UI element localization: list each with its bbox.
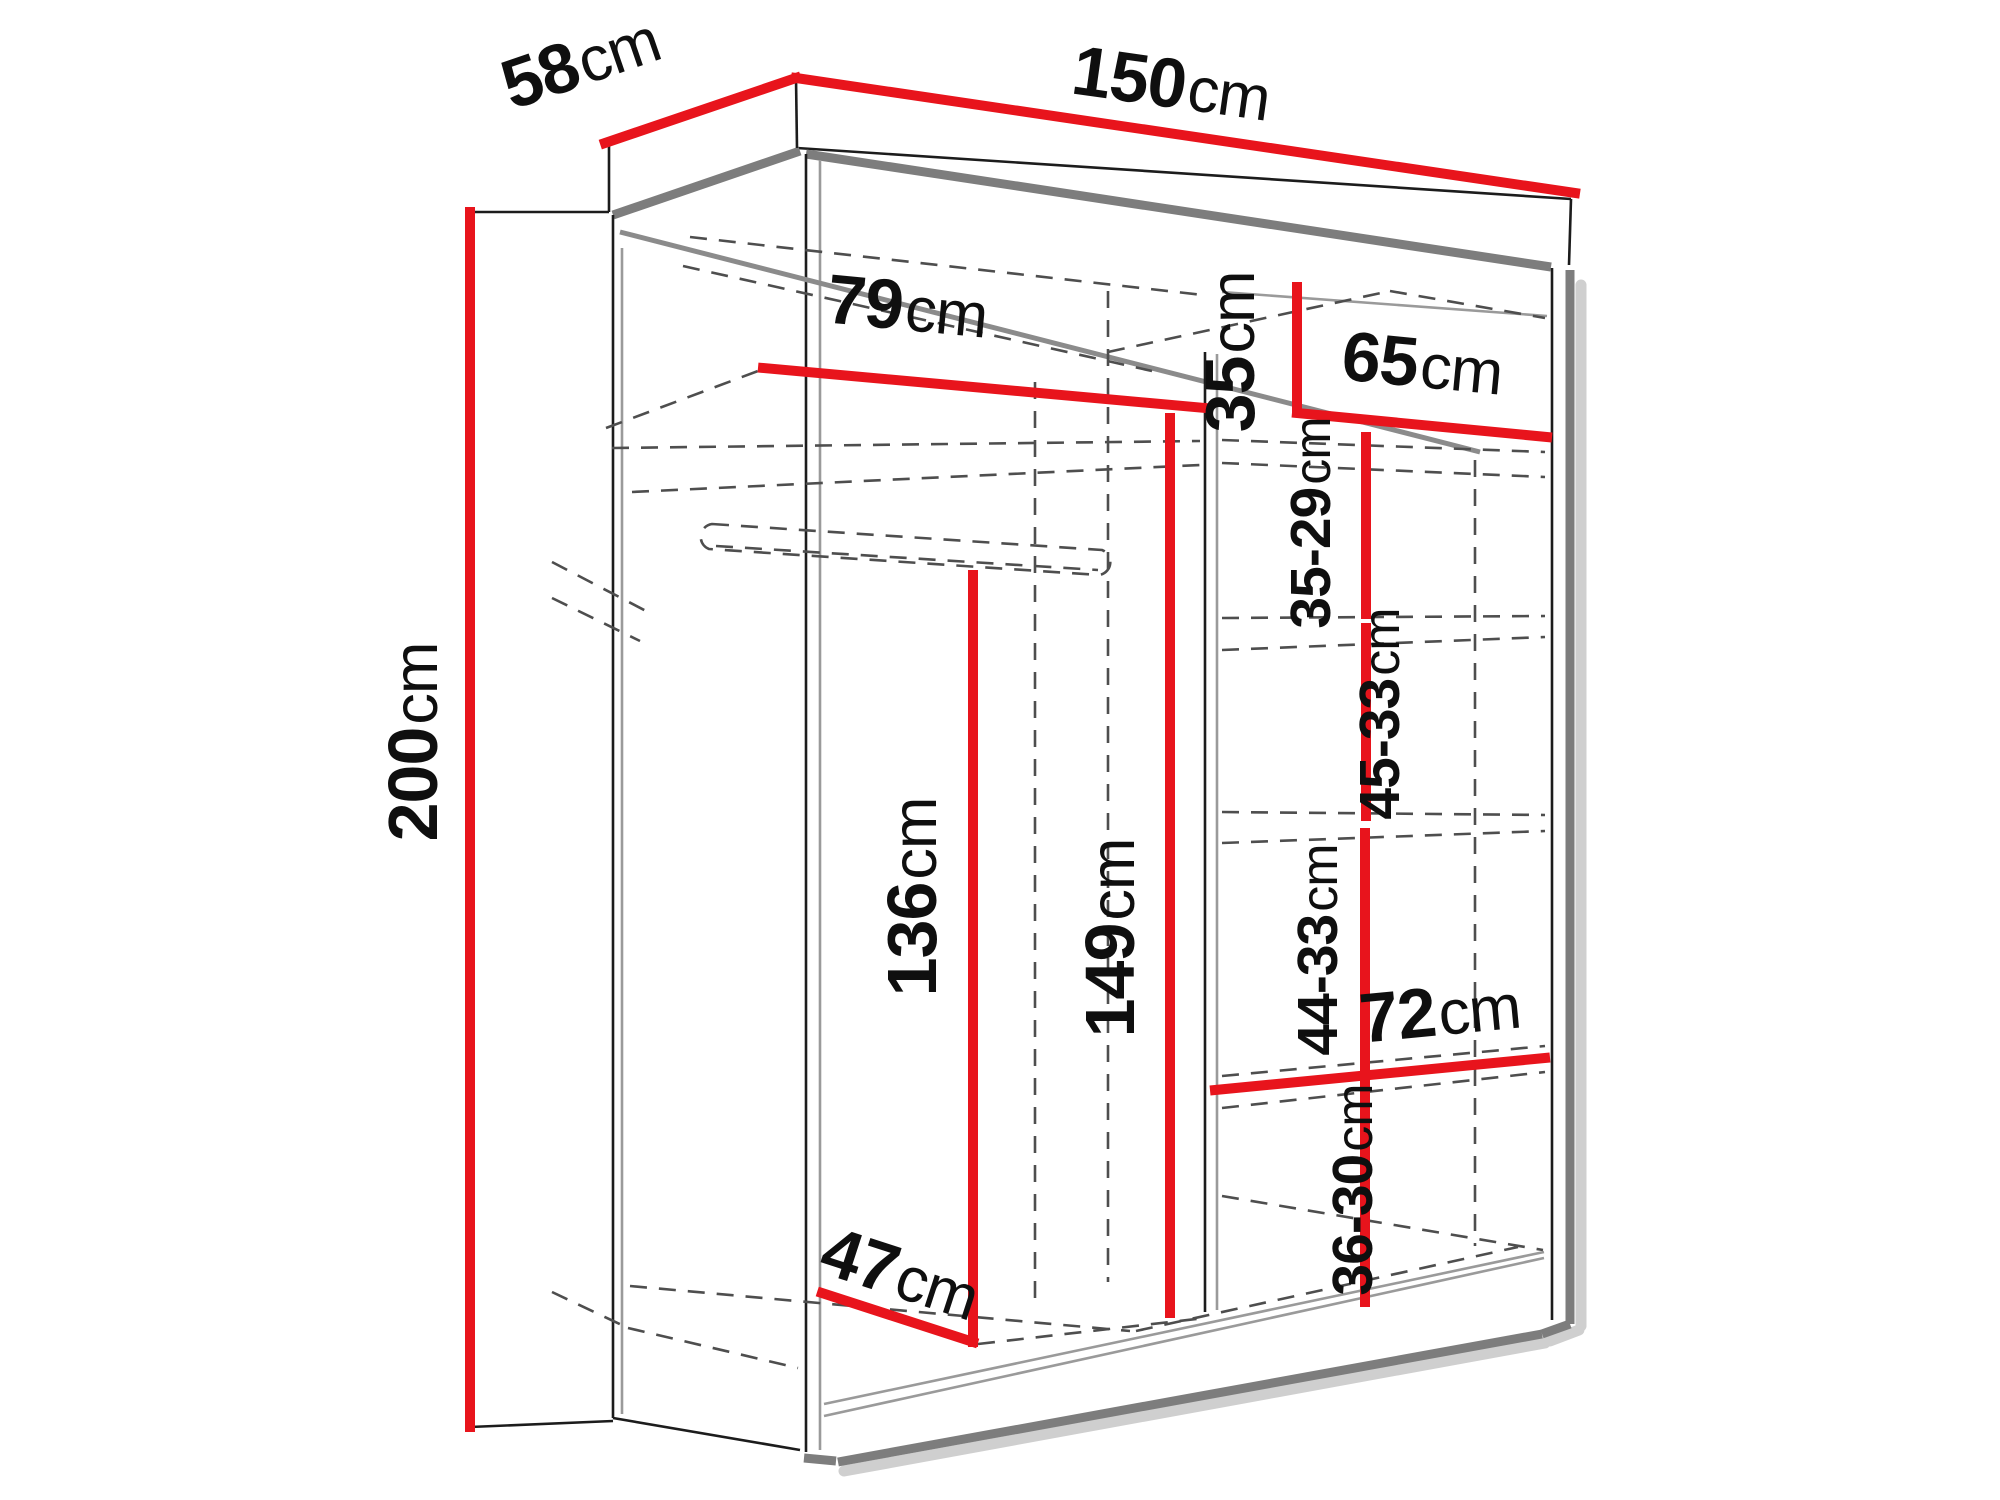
dimension-label-65cm: 65cm — [1339, 317, 1507, 410]
top-panel-underside-edge — [1222, 292, 1547, 316]
wardrobe-crown-slab — [613, 148, 1571, 267]
dimension-label-35cm: 35cm — [1191, 272, 1269, 433]
diagram-canvas: 58cm 150cm 200cm 79cm 35cm 65cm 35-29cm … — [0, 0, 2000, 1500]
left-foot — [804, 1458, 836, 1461]
dimension-labels: 58cm 150cm 200cm 79cm 35cm 65cm 35-29cm … — [374, 0, 1523, 1335]
dimension-label-149cm: 149cm — [1071, 839, 1149, 1038]
dimension-line-width-150 — [796, 78, 1575, 193]
bottom-left-edge — [613, 1418, 800, 1450]
wardrobe-dimension-diagram: 58cm 150cm 200cm 79cm 35cm 65cm 35-29cm … — [0, 0, 2000, 1500]
dimension-label-36-30cm: 36-30cm — [1321, 1084, 1385, 1295]
dimension-line-79 — [763, 368, 1205, 408]
dimension-label-200cm: 200cm — [374, 643, 452, 842]
dimension-label-136cm: 136cm — [873, 798, 951, 997]
dimension-label-72cm: 72cm — [1356, 965, 1524, 1058]
slab-right-end-edge — [1569, 199, 1571, 265]
dimension-label-79cm: 79cm — [824, 260, 992, 353]
dimension-label-45-33cm: 45-33cm — [1348, 608, 1412, 819]
plinth-bottom-edge — [838, 1334, 1542, 1462]
slab-bottom-left-edge — [613, 151, 800, 215]
dimension-label-58cm: 58cm — [491, 0, 668, 124]
dimension-label-35-29cm: 35-29cm — [1279, 417, 1343, 628]
dimension-line-depth-58 — [605, 78, 796, 143]
dimension-label-44-33cm: 44-33cm — [1286, 844, 1350, 1055]
